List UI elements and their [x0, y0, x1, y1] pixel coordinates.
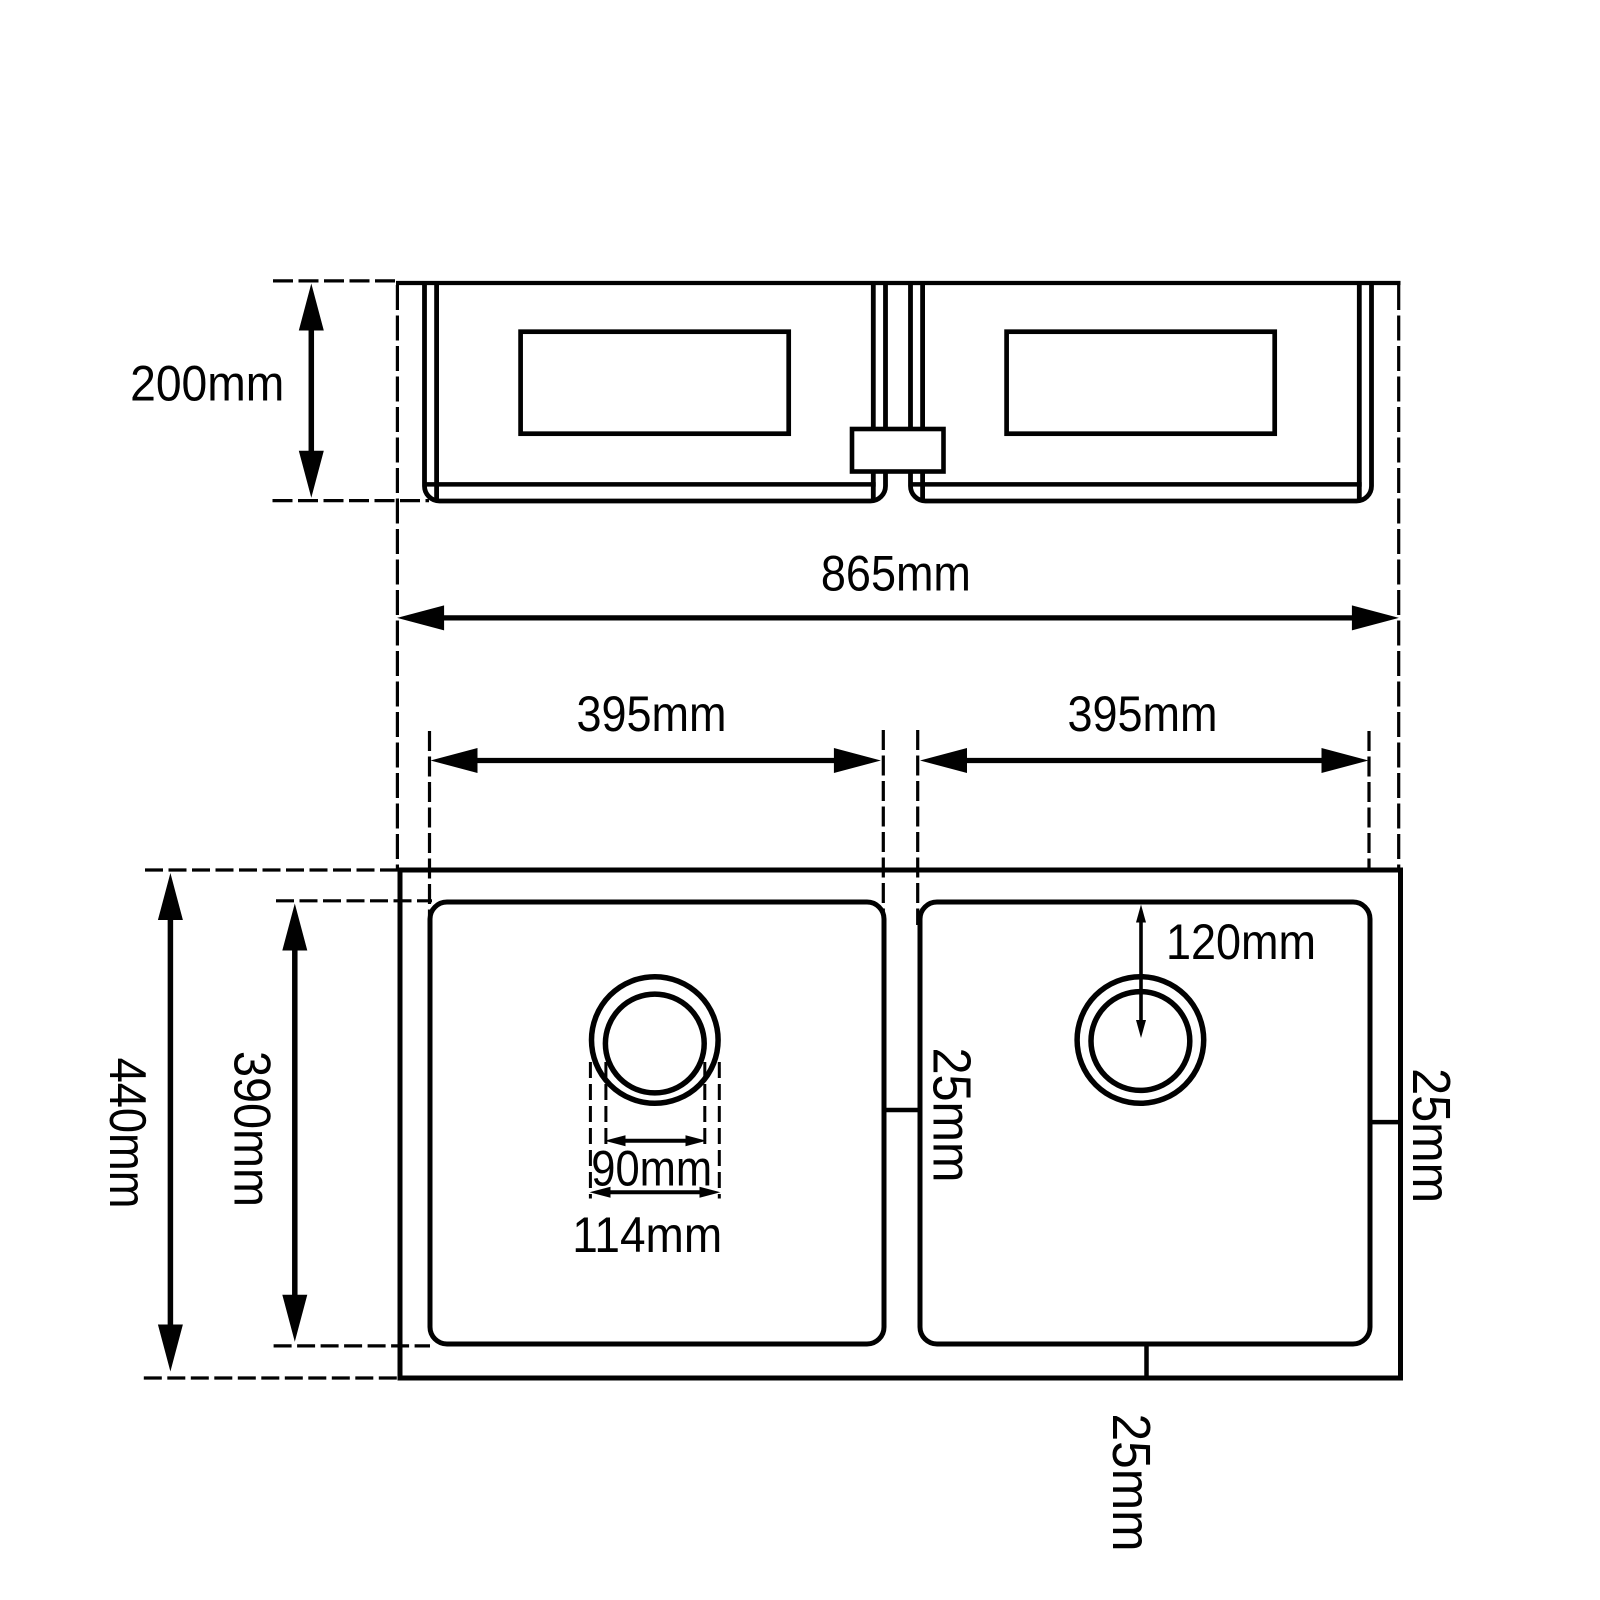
- svg-text:865mm: 865mm: [821, 546, 971, 602]
- svg-text:25mm: 25mm: [1102, 1413, 1162, 1551]
- svg-text:395mm: 395mm: [1068, 687, 1218, 743]
- svg-text:440mm: 440mm: [98, 1058, 156, 1209]
- svg-text:114mm: 114mm: [572, 1208, 722, 1263]
- svg-text:200mm: 200mm: [130, 356, 284, 412]
- svg-text:395mm: 395mm: [577, 687, 727, 743]
- svg-text:25mm: 25mm: [1401, 1068, 1462, 1203]
- svg-text:25mm: 25mm: [922, 1047, 983, 1182]
- svg-text:390mm: 390mm: [223, 1051, 281, 1207]
- svg-text:120mm: 120mm: [1166, 915, 1316, 971]
